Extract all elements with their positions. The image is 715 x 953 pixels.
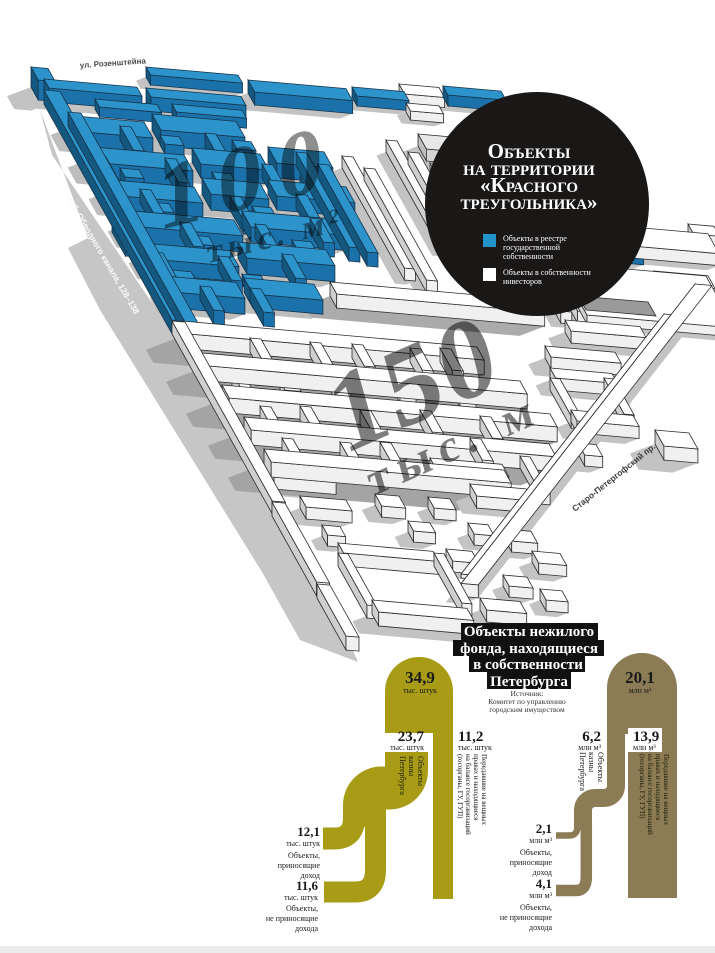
- svg-text:Петербурга: Петербурга: [578, 752, 587, 791]
- svg-text:2,1: 2,1: [536, 821, 552, 836]
- svg-text:правах и находящиеся: правах и находящиеся: [472, 754, 480, 821]
- svg-text:приносящие: приносящие: [278, 861, 321, 870]
- svg-text:городским имуществом: городским имуществом: [489, 705, 565, 714]
- svg-text:млн м³: млн м³: [629, 686, 652, 695]
- svg-text:Объекты нежилого: Объекты нежилого: [464, 624, 594, 640]
- svg-text:государственной: государственной: [503, 243, 561, 252]
- svg-text:млн м³: млн м³: [578, 743, 601, 752]
- svg-text:тыс. штук: тыс. штук: [286, 839, 320, 848]
- svg-text:Петербурга: Петербурга: [398, 756, 407, 795]
- svg-text:20,1: 20,1: [625, 668, 655, 687]
- svg-text:Объекты,: Объекты,: [520, 903, 552, 912]
- svg-text:Объекты в собственности: Объекты в собственности: [503, 268, 592, 277]
- svg-text:фонда, находящиеся: фонда, находящиеся: [460, 641, 598, 657]
- svg-text:треугольника»: треугольника»: [461, 190, 598, 214]
- svg-text:Передавшие на вещных: Передавшие на вещных: [662, 754, 670, 825]
- svg-text:(госорганы, ГУ, ГУП): (госорганы, ГУ, ГУП): [638, 754, 646, 819]
- svg-text:11,6: 11,6: [296, 878, 319, 893]
- svg-text:на балансе госорганизаций: на балансе госорганизаций: [646, 754, 654, 835]
- svg-text:тыс. штук: тыс. штук: [458, 743, 492, 752]
- svg-text:приносящие: приносящие: [510, 858, 553, 867]
- svg-text:(госорганы, ГУ, ГУП): (госорганы, ГУ, ГУП): [456, 754, 464, 819]
- svg-text:правах и находящиеся: правах и находящиеся: [654, 754, 662, 821]
- svg-text:тыс. штук: тыс. штук: [403, 686, 437, 695]
- svg-text:казны: казны: [587, 752, 596, 773]
- svg-text:не приносящие: не приносящие: [500, 913, 553, 922]
- svg-text:Объекты: Объекты: [596, 752, 605, 783]
- svg-text:млн м³: млн м³: [529, 836, 552, 845]
- svg-text:казны: казны: [407, 756, 416, 777]
- svg-text:Объекты,: Объекты,: [520, 848, 552, 857]
- svg-text:Объекты,: Объекты,: [288, 851, 320, 860]
- svg-text:4,1: 4,1: [536, 876, 552, 891]
- svg-text:тыс. штук: тыс. штук: [284, 893, 318, 902]
- svg-text:на балансе госорганизаций: на балансе госорганизаций: [464, 754, 472, 835]
- svg-text:12,1: 12,1: [297, 824, 320, 839]
- svg-text:млн м³: млн м³: [529, 891, 552, 900]
- svg-text:дохода: дохода: [529, 923, 552, 932]
- svg-text:Передавшие на вещных: Передавшие на вещных: [480, 754, 488, 825]
- svg-text:дохода: дохода: [295, 924, 318, 933]
- svg-text:в собственности: в собственности: [473, 657, 583, 673]
- svg-text:тыс. штук: тыс. штук: [390, 743, 424, 752]
- svg-text:34,9: 34,9: [405, 668, 435, 687]
- svg-text:Петербурга: Петербурга: [490, 674, 568, 690]
- svg-text:инвесторов: инвесторов: [503, 277, 542, 286]
- svg-text:млн м³: млн м³: [633, 743, 656, 752]
- svg-text:Объекты в реестре: Объекты в реестре: [503, 234, 567, 243]
- svg-text:не приносящие: не приносящие: [266, 914, 319, 923]
- svg-text:собственности: собственности: [503, 252, 554, 261]
- svg-text:Объекты,: Объекты,: [286, 904, 318, 913]
- svg-text:Объекты: Объекты: [416, 756, 425, 787]
